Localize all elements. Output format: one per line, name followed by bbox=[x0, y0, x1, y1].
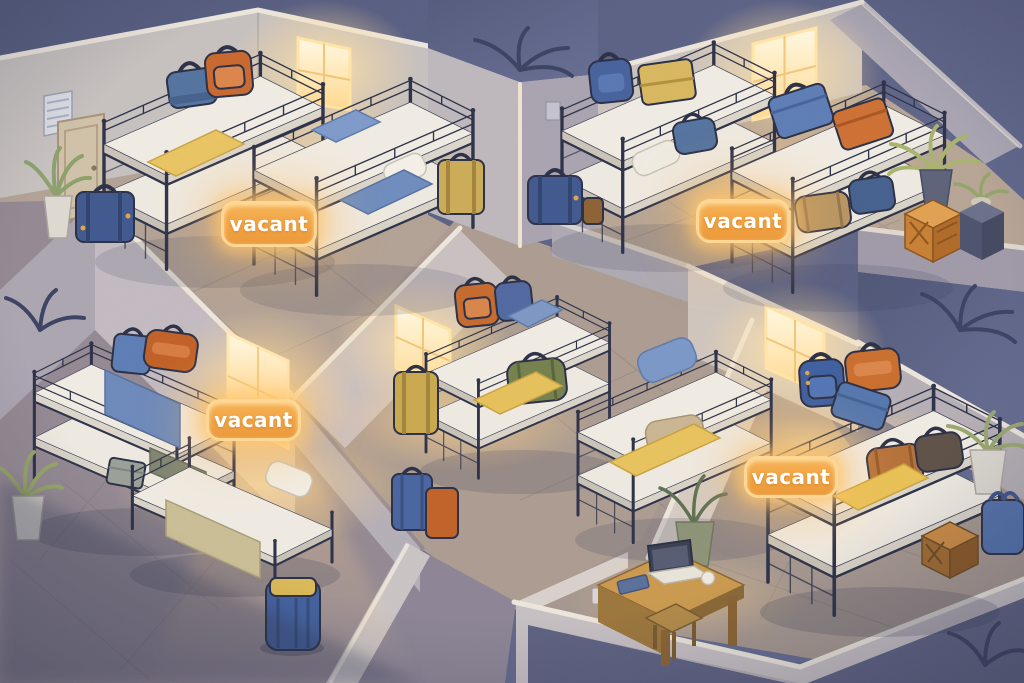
vacant-badge-top-right[interactable]: vacant bbox=[696, 199, 790, 243]
vacant-badge-middle-left[interactable]: vacant bbox=[206, 399, 301, 441]
grain-texture bbox=[0, 0, 1024, 683]
vacant-badge-bottom-right[interactable]: vacant bbox=[744, 456, 838, 498]
vacant-badge-top-left[interactable]: vacant bbox=[221, 201, 317, 247]
hostel-illustration: vacant vacant vacant vacant bbox=[0, 0, 1024, 683]
illustration-canvas bbox=[0, 0, 1024, 683]
